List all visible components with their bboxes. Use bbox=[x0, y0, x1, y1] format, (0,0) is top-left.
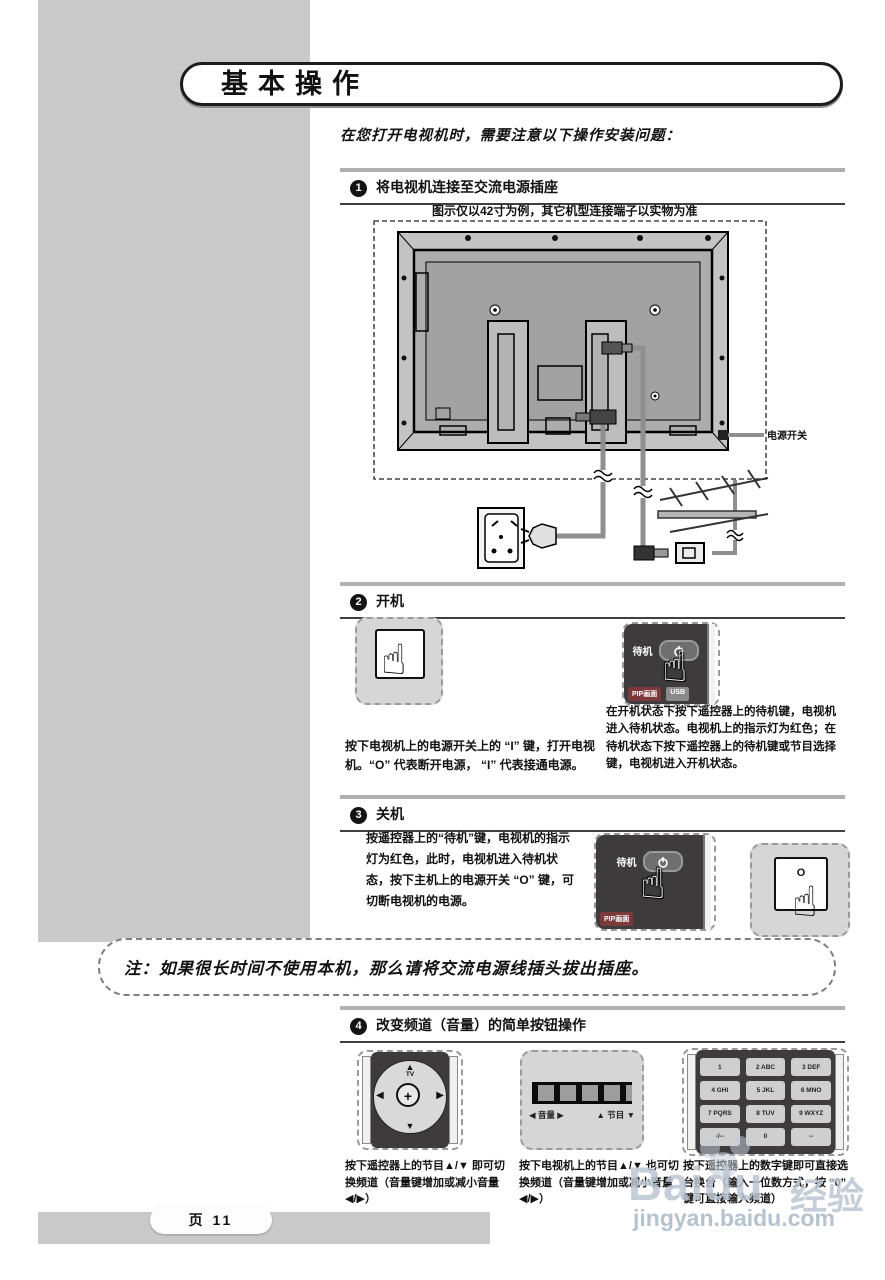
key-3: 3 DEF bbox=[791, 1058, 831, 1076]
page-number: 页 11 bbox=[150, 1206, 272, 1234]
pip-label: PIP画面 bbox=[600, 912, 633, 926]
number-keypad: 1 2 ABC 3 DEF 4 GHI 5 JKL 6 MNO 7 PQRS 8… bbox=[700, 1058, 831, 1146]
key-extra: -- bbox=[791, 1128, 831, 1146]
watermark-url: jingyan.baidu.com bbox=[633, 1205, 835, 1232]
section-1-header: 1将电视机连接至交流电源插座 bbox=[340, 168, 845, 205]
volume-down-arrow: ◀ bbox=[376, 1090, 384, 1101]
dpad: ▲TV ▼ ◀ ▶ + bbox=[373, 1060, 447, 1134]
tv-diagram-caption: 图示仅以42寸为例，其它机型连接端子以实物为准 bbox=[432, 202, 697, 219]
intro-text: 在您打开电视机时，需要注意以下操作安装问题： bbox=[340, 124, 681, 145]
key-5: 5 JKL bbox=[746, 1081, 786, 1099]
channel-up-arrow: ▲TV bbox=[374, 1063, 446, 1079]
power-switch-label: 电源开关 bbox=[767, 429, 807, 442]
section-2-number: 2 bbox=[350, 594, 367, 611]
caption-remote-dpad: 按下遥控器上的节目▲/▼ 即可切换频道（音量键增加或减小音量◀/▶） bbox=[345, 1158, 508, 1208]
power-switch-off-figure: O ☝ bbox=[750, 843, 850, 937]
remote-edge bbox=[707, 624, 715, 704]
power-on-right-text: 在开机状态下按下遥控器上的待机键，电视机进入待机状态。电视机上的指示灯为红色；在… bbox=[606, 704, 846, 773]
section-3-header: 3关机 bbox=[340, 795, 845, 832]
button-strip bbox=[532, 1082, 632, 1104]
section-3-number: 3 bbox=[350, 807, 367, 824]
power-off-text: 按遥控器上的“待机”键，电视机的指示灯为红色，此时，电视机进入待机状态，按下主机… bbox=[366, 828, 581, 912]
key-1: 1 bbox=[700, 1058, 740, 1076]
volume-up-arrow: ▶ bbox=[436, 1090, 444, 1101]
left-gray-column bbox=[38, 0, 310, 942]
tv-connection-diagram: 电源开关 bbox=[340, 218, 845, 580]
section-3-title: 关机 bbox=[376, 806, 404, 822]
wall-socket-plug bbox=[478, 508, 556, 568]
note-text: 注：如果很长时间不使用本机，那么请将交流电源线插头拔出插座。 bbox=[124, 955, 649, 979]
section-4-title: 改变频道（音量）的简单按钮操作 bbox=[376, 1017, 586, 1033]
remote-edge bbox=[687, 1054, 696, 1150]
watermark-paw-icon bbox=[730, 1136, 750, 1156]
remote-edge bbox=[362, 1056, 371, 1144]
remote-standby-off-figure: 待机 PIP画面 ☝ bbox=[594, 833, 716, 931]
note-box: 注：如果很长时间不使用本机，那么请将交流电源线插头拔出插座。 bbox=[98, 938, 836, 996]
section-4-header: 4改变频道（音量）的简单按钮操作 bbox=[340, 1006, 845, 1043]
tv-side-buttons-figure: ◀ 音量 ▶ ▲ 节目 ▼ bbox=[520, 1050, 644, 1150]
program-buttons-label: ▲ 节目 ▼ bbox=[596, 1109, 635, 1121]
pointing-hand-icon: ☝ bbox=[662, 646, 688, 688]
remote-standby-on-figure: 待机 PIP画面 USB ☝ bbox=[622, 622, 720, 706]
standby-label: 待机 bbox=[617, 854, 637, 869]
power-switch-pointer bbox=[718, 430, 764, 440]
manual-page: 基本操作 在您打开电视机时，需要注意以下操作安装问题： 1将电视机连接至交流电源… bbox=[0, 0, 885, 1280]
section-2-title: 开机 bbox=[376, 593, 404, 609]
pointing-hand-icon: ☝ bbox=[792, 881, 818, 923]
remote-dpad-figure: ▲TV ▼ ◀ ▶ + bbox=[357, 1050, 463, 1150]
pointing-hand-icon: ☝ bbox=[381, 639, 407, 681]
remote-edge bbox=[449, 1056, 458, 1144]
channel-down-arrow: ▼ bbox=[374, 1121, 446, 1131]
power-on-left-text: 按下电视机上的电源开关上的 “I” 键，打开电视机。“O” 代表断开电源， “I… bbox=[345, 737, 603, 775]
section-4-number: 4 bbox=[350, 1018, 367, 1035]
key-0: 0 bbox=[746, 1128, 786, 1146]
pointing-hand-icon: ☝ bbox=[640, 863, 666, 905]
key-4: 4 GHI bbox=[700, 1081, 740, 1099]
remote-edge bbox=[835, 1054, 844, 1150]
dpad-center-button: + bbox=[396, 1083, 420, 1107]
key-7: 7 PQRS bbox=[700, 1105, 740, 1123]
key-2: 2 ABC bbox=[746, 1058, 786, 1076]
key-6: 6 MNO bbox=[791, 1081, 831, 1099]
remote-edge bbox=[703, 835, 711, 929]
key-8: 8 TUV bbox=[746, 1105, 786, 1123]
page-title: 基本操作 bbox=[180, 62, 843, 106]
volume-buttons-label: ◀ 音量 ▶ bbox=[529, 1109, 564, 1121]
key-9: 9 WXYZ bbox=[791, 1105, 831, 1123]
antenna bbox=[634, 470, 768, 563]
power-switch-on-figure: ☝ bbox=[355, 617, 443, 705]
standby-label: 待机 bbox=[633, 643, 653, 658]
caption-tv-buttons: 按下电视机上的节目▲/▼ 也可切换频道（音量键增加或减小音量◀/▶） bbox=[519, 1158, 682, 1208]
watermark-paw-icon bbox=[708, 1152, 738, 1178]
section-1-title: 将电视机连接至交流电源插座 bbox=[376, 179, 558, 195]
tv-back-illustration bbox=[398, 232, 728, 450]
section-2-header: 2开机 bbox=[340, 582, 845, 619]
section-1-number: 1 bbox=[350, 180, 367, 197]
pip-label: PIP画面 bbox=[628, 687, 661, 701]
